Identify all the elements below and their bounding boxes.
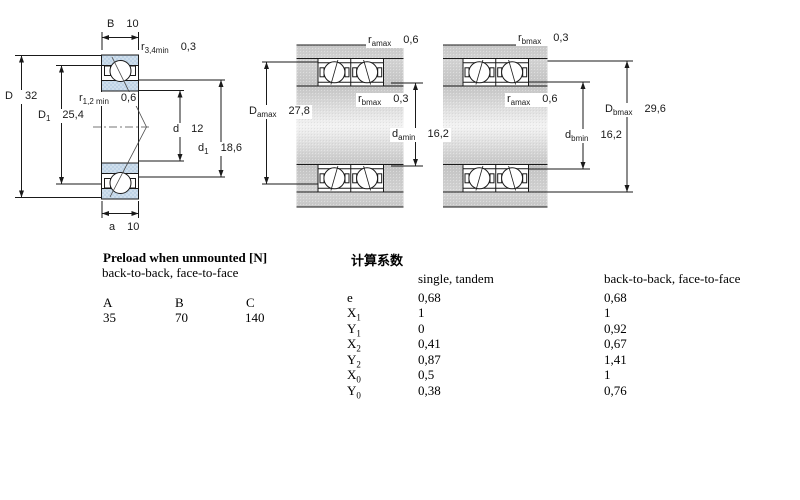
cage xyxy=(378,68,382,77)
label-B: B10 xyxy=(105,18,141,32)
label-rbmax-mid: rbmax0,3 xyxy=(356,93,411,107)
label-ramax-top: ramax0,6 xyxy=(366,34,421,48)
label-damin: damin16,2 xyxy=(390,128,451,142)
preload-val-C: 140 xyxy=(245,310,265,326)
inner-ring-bottom xyxy=(102,163,139,174)
preload-val-B: 70 xyxy=(175,310,188,326)
arrowheads xyxy=(581,61,630,192)
label-D1: D125,4 xyxy=(36,109,86,123)
dim-Dbmax xyxy=(548,61,634,192)
label-ramax-mid: ramax0,6 xyxy=(505,93,560,107)
label-dbmin: dbmin16,2 xyxy=(563,129,624,143)
cage xyxy=(345,68,349,77)
factors-title: 计算系数 xyxy=(351,250,403,269)
preload-val-A: 35 xyxy=(103,310,116,326)
label-D: D32 xyxy=(3,90,39,104)
ball xyxy=(110,61,131,82)
dim-D1 xyxy=(56,66,101,185)
label-d1: d118,6 xyxy=(196,142,244,156)
label-a: a10 xyxy=(107,221,141,235)
bearing-pair-top xyxy=(463,59,529,87)
factors-col2-header: back-to-back, face-to-face xyxy=(604,271,740,287)
cage xyxy=(490,68,494,77)
label-rbmax-top: rbmax0,3 xyxy=(516,32,571,46)
cage xyxy=(490,174,494,183)
preload-subtitle: back-to-back, face-to-face xyxy=(102,265,238,281)
preload-col-B: B xyxy=(175,295,184,311)
label-Damax: Damax27,8 xyxy=(247,105,312,119)
preload-title: Preload when unmounted [N] xyxy=(103,250,267,266)
bearing-datasheet-page: B10 r3,4min0,3 D32 r1,2 min0,6 D125,4 d1… xyxy=(0,0,800,500)
preload-col-C: C xyxy=(246,295,255,311)
label-r12: r1,2 min0,6 xyxy=(77,92,138,106)
preload-col-A: A xyxy=(103,295,112,311)
fig3-paired-mounting xyxy=(443,45,633,207)
cage xyxy=(523,68,527,77)
factors-table: 计算系数 single, tandem back-to-back, face-t… xyxy=(346,250,786,410)
bearing-pair-top xyxy=(318,59,384,87)
fig2-paired-mounting xyxy=(262,45,423,207)
label-r34: r3,4min0,3 xyxy=(139,41,198,55)
cage xyxy=(378,174,382,183)
dim-B xyxy=(102,32,139,50)
inner-ring-top xyxy=(102,81,139,92)
cage xyxy=(345,174,349,183)
bearing-pair-bottom xyxy=(318,165,384,193)
cage xyxy=(523,174,527,183)
label-d: d12 xyxy=(171,123,205,137)
label-Dbmax: Dbmax29,6 xyxy=(603,103,668,117)
dim-D xyxy=(15,56,101,198)
bearing-pair-bottom xyxy=(463,165,529,193)
preload-table: Preload when unmounted [N] back-to-back,… xyxy=(103,250,383,330)
factors-col1-header: single, tandem xyxy=(418,271,494,287)
